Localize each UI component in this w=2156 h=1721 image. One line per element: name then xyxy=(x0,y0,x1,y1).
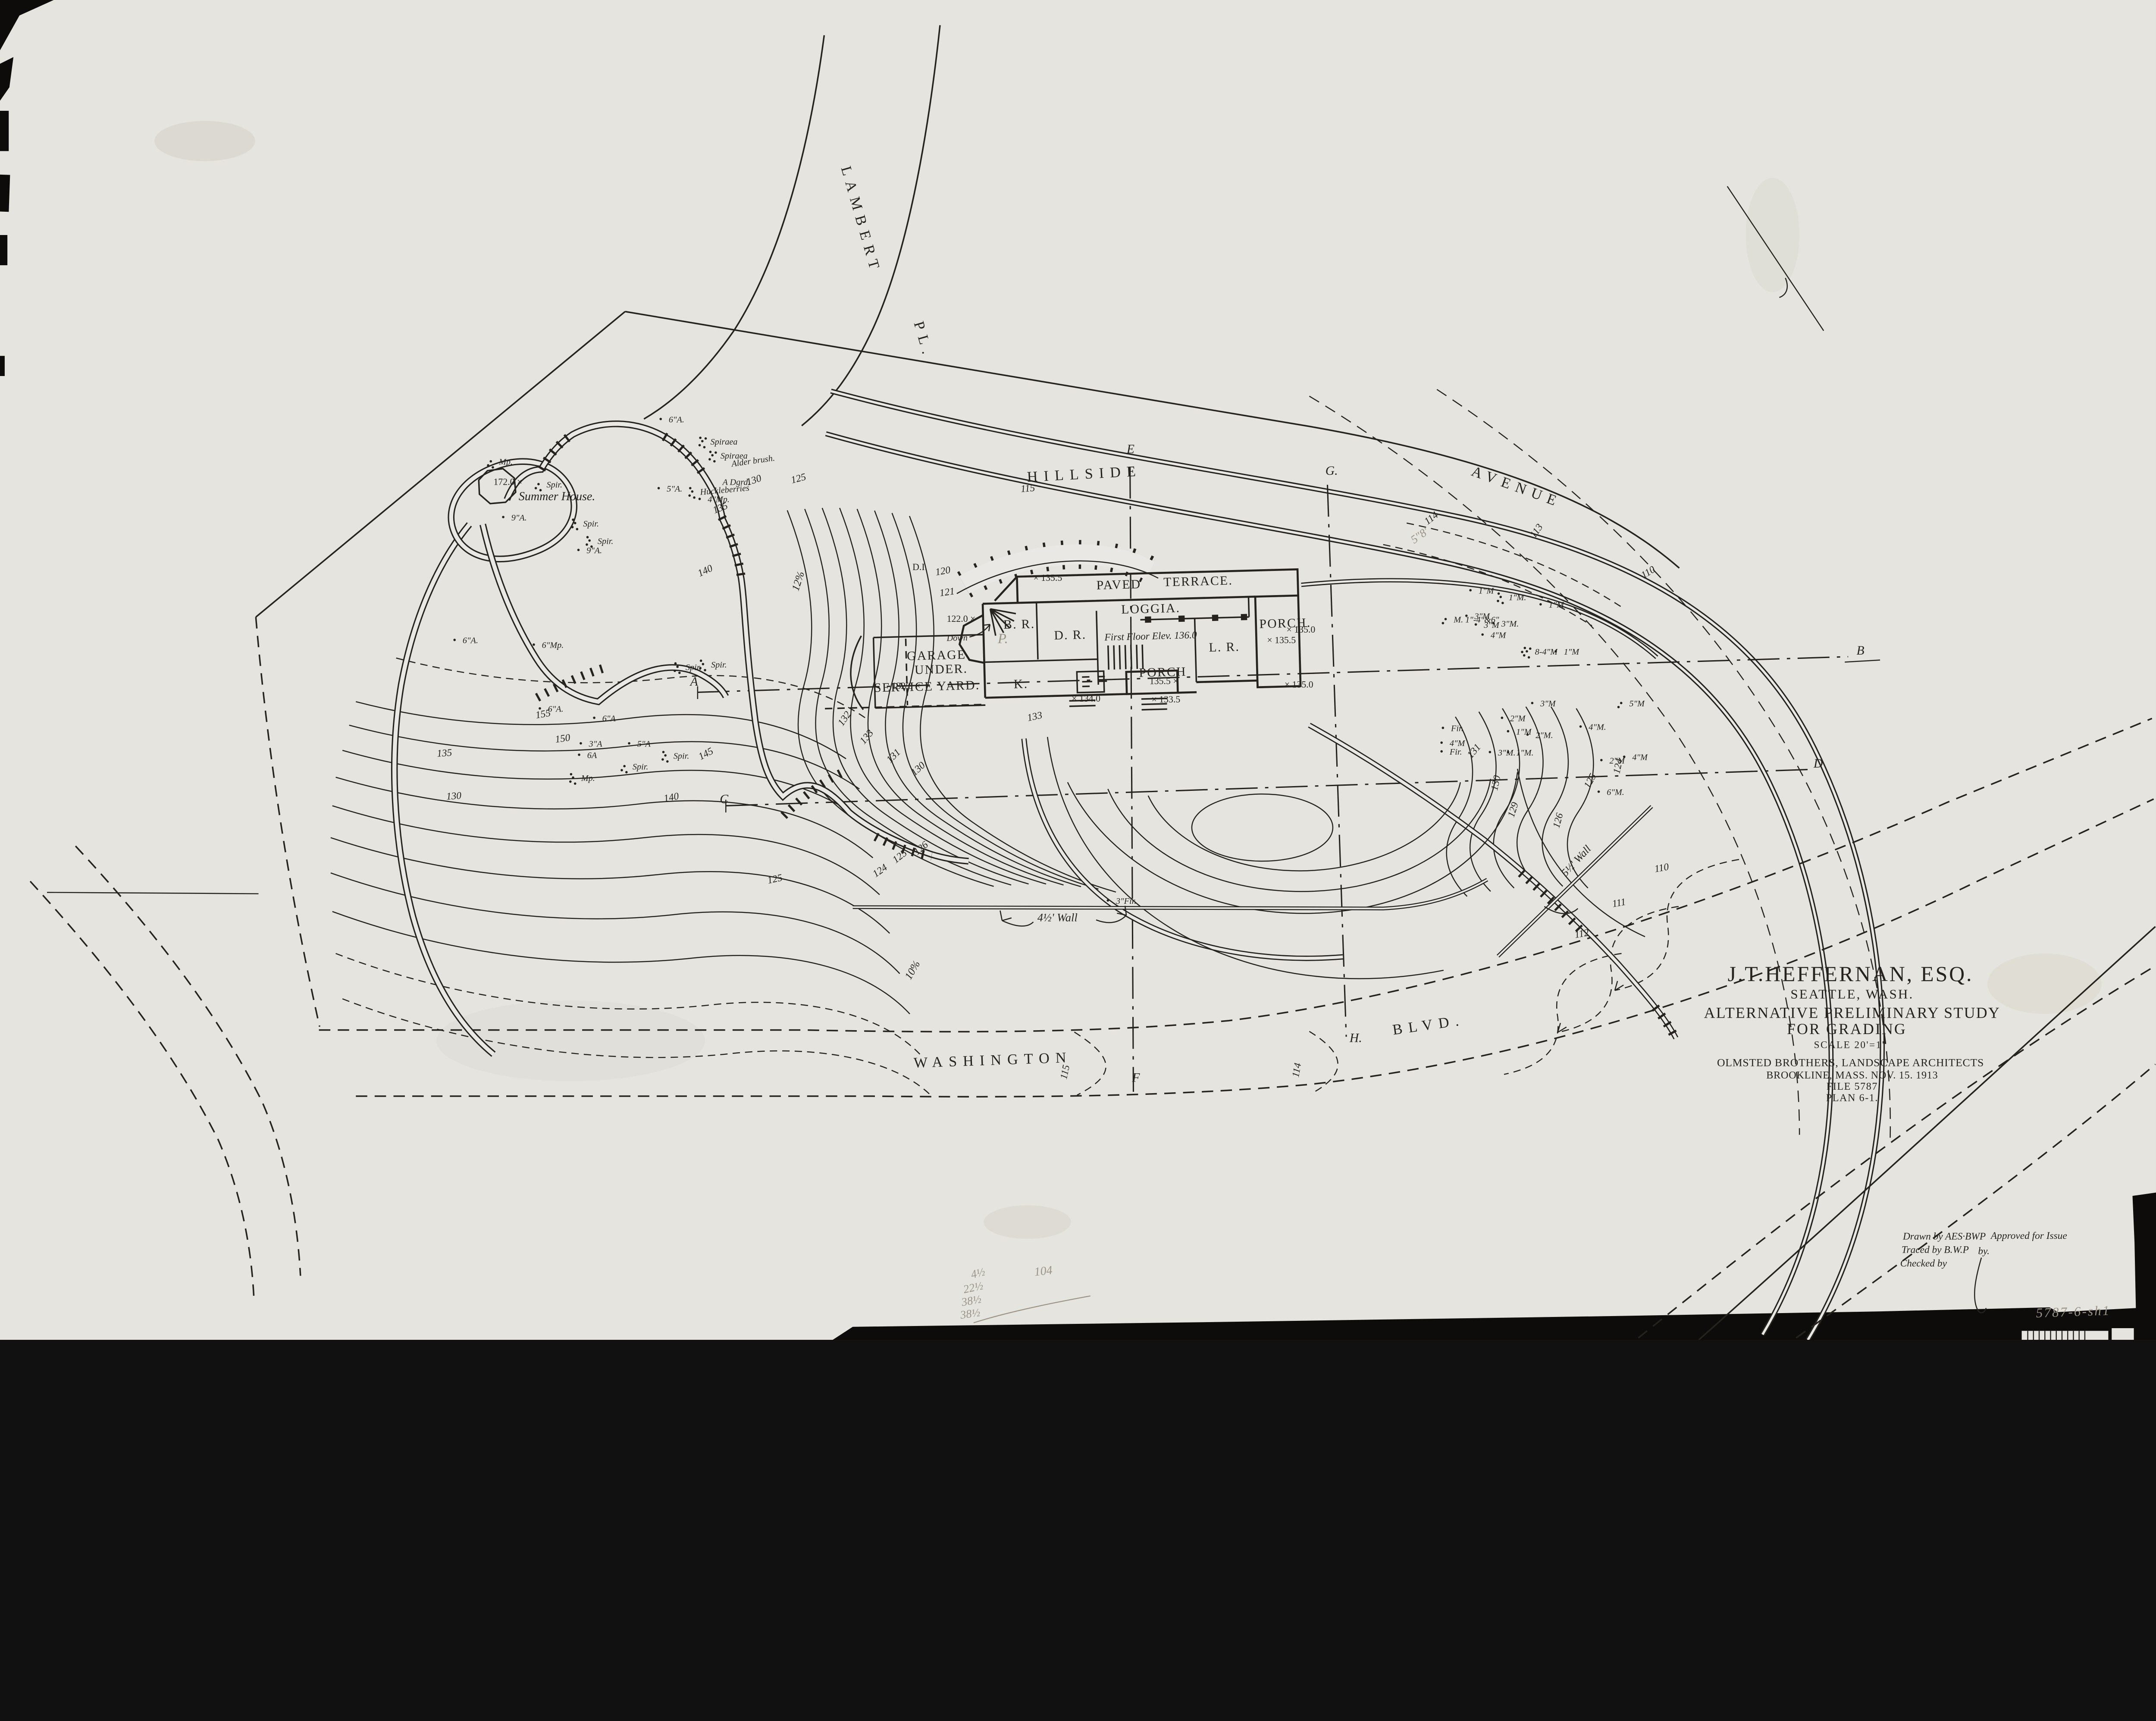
label-wall-south: 4½' Wall xyxy=(1037,911,1078,924)
tree-dot xyxy=(1617,706,1620,708)
tree-tag: 6"A. xyxy=(669,415,684,424)
title-line2: FOR GRADING xyxy=(1787,1020,1907,1038)
tree-dot xyxy=(674,670,676,672)
credit-drawn: Drawn by AES·BWP xyxy=(1902,1231,1986,1242)
tree-tag: 6"M. xyxy=(1607,788,1624,797)
tree-dot xyxy=(1507,751,1510,753)
tree-dot xyxy=(1539,603,1542,606)
tree-dot xyxy=(576,528,579,530)
label-loggia: LOGGIA. xyxy=(1121,601,1181,617)
tree-dot xyxy=(1529,647,1532,650)
section-marker: B xyxy=(1857,644,1865,658)
tree-tag: 3"Fir. xyxy=(1116,897,1136,906)
pencil-math-sum: 104 xyxy=(1034,1263,1053,1279)
tree-tag: 3"M xyxy=(1540,699,1556,708)
tree-dot xyxy=(1579,725,1582,728)
tree-dot xyxy=(1498,592,1500,595)
tree-dot xyxy=(714,451,717,454)
tree-dot xyxy=(1497,600,1499,602)
tree-tag: 1"M. xyxy=(1516,748,1534,758)
tree-dot xyxy=(1469,589,1472,592)
tree-tag: 6"A xyxy=(602,714,616,723)
tree-dot xyxy=(666,760,669,763)
tree-tag: 3"M xyxy=(1483,621,1500,630)
section-marker: A xyxy=(689,675,699,689)
tree-tag: 5"M xyxy=(1629,699,1645,708)
title-file: FILE 5787 xyxy=(1827,1081,1878,1092)
tree-tag: 4"M. xyxy=(1589,723,1606,732)
section-marker: D xyxy=(1813,757,1823,771)
tree-dot xyxy=(699,498,701,500)
tree-tag: 1"M xyxy=(1479,586,1495,596)
tree-tag: 6"Mp. xyxy=(542,641,564,650)
tree-tag: 4"Mp. xyxy=(708,495,730,505)
tree-dot xyxy=(574,522,577,524)
tree-dot xyxy=(699,667,702,670)
tree-dot xyxy=(689,487,692,489)
tree-dot xyxy=(1526,650,1528,653)
tree-tag: 6A xyxy=(587,751,597,760)
tree-dot xyxy=(1481,633,1484,636)
tree-dot xyxy=(1521,651,1523,653)
tree-tag: 4"M xyxy=(1450,739,1466,748)
credit-approved: Approved for Issue xyxy=(1990,1230,2067,1241)
tree-dot xyxy=(620,769,623,771)
tree-dot xyxy=(1440,750,1443,753)
tree-dot xyxy=(492,466,494,469)
tree-dot xyxy=(700,659,702,662)
tree-dot xyxy=(705,437,707,440)
tree-dot xyxy=(709,451,712,453)
label-br: B. R. xyxy=(1003,617,1035,632)
contour-label: 115 xyxy=(1020,483,1035,495)
tree-tag: Spir. xyxy=(633,762,649,771)
section-marker: G. xyxy=(1326,464,1338,478)
tree-tag: 8-4"M xyxy=(1535,647,1558,657)
tree-dot xyxy=(572,518,574,521)
tree-dot xyxy=(537,483,540,486)
label-under: UNDER. xyxy=(915,662,968,677)
tree-dot xyxy=(702,663,705,665)
tree-tag: Spir. xyxy=(711,660,727,670)
tree-dot xyxy=(574,782,577,785)
tree-dot xyxy=(1501,602,1504,605)
tree-dot xyxy=(678,671,681,674)
spot-elevation: × 135.5 xyxy=(1267,635,1296,646)
tree-dot xyxy=(1600,759,1603,762)
tree-dot xyxy=(533,643,535,646)
tree-tag: Spir. xyxy=(547,480,563,489)
title-firm: OLMSTED BROTHERS, LANDSCAPE ARCHITECTS xyxy=(1717,1056,1984,1069)
tree-tag: Mp. xyxy=(581,774,595,783)
tree-tag: Fir. xyxy=(1449,747,1462,757)
tree-dot xyxy=(1442,727,1445,729)
tree-dot xyxy=(1501,717,1504,719)
title-line1: ALTERNATIVE PRELIMINARY STUDY xyxy=(1704,1004,2001,1022)
spot-elevation: × 134.0 xyxy=(1072,693,1100,704)
tree-tag: 4"M xyxy=(1491,630,1507,640)
tree-dot xyxy=(708,458,711,461)
tree-dot xyxy=(664,754,667,757)
label-drain-inlet: D.I. xyxy=(912,562,927,572)
label-lr: L. R. xyxy=(1209,640,1240,655)
tree-dot xyxy=(1492,622,1495,624)
tree-dot xyxy=(1106,899,1109,902)
tree-tag: 3"M. xyxy=(1498,748,1516,758)
title-location: SEATTLE, WASH. xyxy=(1790,986,1914,1001)
tree-dot xyxy=(577,549,580,551)
tree-dot xyxy=(1554,650,1557,653)
tree-dot xyxy=(1465,614,1468,617)
tree-dot xyxy=(489,460,492,463)
label-down: Down xyxy=(946,633,968,643)
tree-dot xyxy=(1489,751,1492,753)
pencil-p-mark: P. xyxy=(997,631,1008,647)
tree-dot xyxy=(704,669,706,671)
tree-dot xyxy=(693,496,696,499)
tree-dot xyxy=(586,543,588,546)
contour-label: 111 xyxy=(1611,897,1627,910)
tree-tag: 9"A. xyxy=(511,513,527,523)
label-k: K. xyxy=(1013,677,1028,691)
contour-label: 121 xyxy=(939,586,955,599)
tree-dot xyxy=(1523,654,1526,657)
tree-dot xyxy=(1620,702,1623,705)
tree-tag: 3"M xyxy=(1474,612,1490,621)
label-dr: D. R. xyxy=(1054,628,1087,643)
label-terrace: TERRACE. xyxy=(1163,574,1233,589)
tree-dot xyxy=(453,639,456,641)
tree-dot xyxy=(580,742,582,745)
tree-dot xyxy=(699,444,701,447)
spot-elevation: 132.0 × xyxy=(892,681,921,691)
tree-tag: Spir. xyxy=(686,663,702,672)
tree-dot xyxy=(1528,656,1530,659)
tree-dot xyxy=(699,436,702,439)
tree-dot xyxy=(628,742,630,745)
plan-canvas: LAMBERT PL. HILLSIDE AVENUE WASHINGTON B… xyxy=(0,0,2156,1340)
contour-label: 130 xyxy=(446,790,462,802)
credit-checked: Checked by xyxy=(1900,1258,1947,1269)
tree-tag: Fir. xyxy=(1451,724,1463,734)
paper-texture xyxy=(0,0,2156,1340)
tree-dot xyxy=(1531,702,1534,705)
tree-tag: 5"A. xyxy=(667,484,682,494)
spot-elevation: 122.0 × xyxy=(947,614,976,624)
section-marker: C xyxy=(720,792,728,806)
section-marker: E xyxy=(1126,442,1134,456)
tree-tag: 2"M. xyxy=(1536,730,1553,740)
tree-dot xyxy=(586,536,589,539)
tree-tag: Spir. xyxy=(598,536,614,546)
tree-dot xyxy=(688,494,691,497)
tree-dot xyxy=(658,487,660,489)
tree-dot xyxy=(593,717,595,719)
tree-tag: 5"A xyxy=(637,740,651,749)
tree-dot xyxy=(1526,734,1529,736)
tree-dot xyxy=(703,446,706,448)
tree-tag: 6"A. xyxy=(548,705,564,714)
tree-dot xyxy=(572,776,574,779)
tree-dot xyxy=(570,773,573,776)
tree-dot xyxy=(713,460,716,463)
tree-dot xyxy=(623,765,626,768)
title-scale: SCALE 20'=1" xyxy=(1814,1040,1887,1051)
contour-label: 150 xyxy=(555,732,571,745)
tree-dot xyxy=(578,753,580,756)
label-garage: GARAGE xyxy=(907,648,966,663)
title-client: J.T.HEFFERNAN, ESQ. xyxy=(1728,962,1974,986)
label-paved: PAVED xyxy=(1096,577,1141,592)
tree-dot xyxy=(676,665,679,668)
spot-elevation: 135.5 × xyxy=(1150,676,1178,687)
tree-dot xyxy=(674,662,677,665)
section-marker: H. xyxy=(1349,1031,1362,1045)
tree-tag: 1"M. xyxy=(1549,600,1567,610)
spot-elevation: 172.0 × xyxy=(494,476,523,487)
tree-dot xyxy=(661,758,664,761)
tree-tag: 1"M. xyxy=(1509,593,1526,602)
title-address: BROOKLINE, MASS. NOV. 15. 1913 xyxy=(1766,1069,1938,1081)
spot-elevation: × 135.0 xyxy=(1285,680,1313,690)
tree-dot xyxy=(539,707,541,710)
tree-tag: 2"M xyxy=(1609,756,1625,765)
tree-dot xyxy=(711,454,714,457)
tree-tag: Mp. xyxy=(498,458,513,467)
tree-dot xyxy=(1499,596,1502,598)
tree-tag: 3"A xyxy=(589,740,603,749)
tree-dot xyxy=(502,516,505,518)
credit-traced: Traced by B.W.P xyxy=(1902,1245,1969,1256)
tree-dot xyxy=(1475,623,1477,626)
tree-dot xyxy=(1442,622,1445,624)
tree-dot xyxy=(659,418,662,420)
section-marker: F xyxy=(1131,1071,1140,1085)
tree-dot xyxy=(487,464,489,467)
label-summer-house: Summer House. xyxy=(519,490,595,503)
tree-dot xyxy=(569,781,572,783)
tree-dot xyxy=(539,489,542,492)
tree-dot xyxy=(625,771,628,774)
tree-tag: 1"M xyxy=(1564,647,1580,657)
tree-tag: 9"A. xyxy=(586,546,602,555)
tree-tag: Spiraea xyxy=(710,437,737,447)
tree-tag: 6"A. xyxy=(463,636,478,646)
tree-dot xyxy=(571,526,574,529)
tree-dot xyxy=(1440,741,1443,744)
tree-dot xyxy=(662,751,665,753)
spot-elevation: × 135.0 xyxy=(1286,624,1315,635)
tree-tag: 4"M xyxy=(1632,753,1648,762)
tree-dot xyxy=(1507,730,1510,733)
tree-dot xyxy=(1598,790,1600,793)
spot-elevation: × 135.5 xyxy=(1033,573,1062,583)
label-service-yard: SERVICE YARD. xyxy=(874,678,980,695)
tree-dot xyxy=(701,440,704,442)
tree-tag: 2"M xyxy=(1510,714,1526,723)
tree-tag: 3"M. xyxy=(1501,619,1519,629)
pencil-archive-number: 5787-6-sh1 xyxy=(2036,1303,2111,1320)
tree-dot xyxy=(1523,647,1526,649)
scanned-plan: LAMBERT PL. HILLSIDE AVENUE WASHINGTON B… xyxy=(0,0,2156,1340)
tree-tag: 1"M xyxy=(1516,727,1532,737)
tree-tag: Spir. xyxy=(674,752,689,761)
credit-approved-by: by. xyxy=(1978,1246,1990,1257)
tree-dot xyxy=(535,487,537,489)
title-plan: PLAN 6-1. xyxy=(1826,1092,1878,1104)
tree-tag: Spir. xyxy=(583,519,599,529)
tree-dot xyxy=(1445,618,1447,621)
tree-dot xyxy=(588,539,591,542)
contour-label: 135 xyxy=(436,747,452,759)
spot-elevation: × 133.5 xyxy=(1152,694,1181,705)
tree-dot xyxy=(691,490,694,493)
